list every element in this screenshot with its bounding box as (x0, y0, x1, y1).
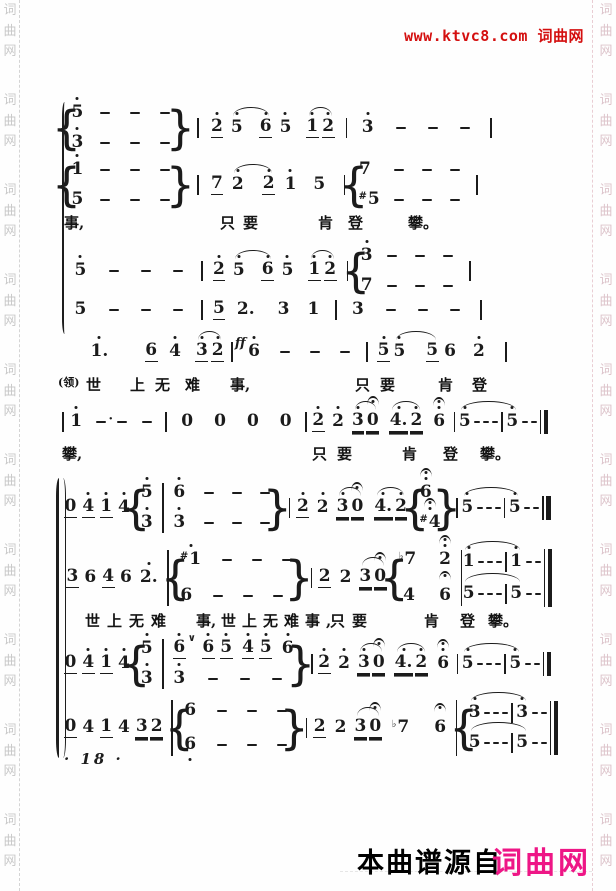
watermark-char: 词 (3, 544, 16, 558)
duration-dash (141, 309, 151, 312)
note-value: 3 (352, 412, 365, 432)
note: 1 (100, 718, 113, 738)
note: 2 (316, 499, 329, 518)
octave-dot-above (438, 406, 441, 409)
lower-voice-row: 6 (184, 734, 287, 756)
octave-dot-above (145, 633, 148, 636)
lower-voice-row: #5 (358, 189, 380, 211)
lyric-text: (领) (58, 374, 79, 390)
watermark-char: 网 (599, 585, 612, 599)
note-value: 0 (369, 718, 382, 738)
note-value: 1 (308, 261, 321, 281)
note-value: 6 (173, 484, 186, 503)
octave-dot-above (382, 336, 385, 339)
octave-dot-above (313, 255, 316, 258)
duration-dash (477, 663, 483, 666)
watermark-group: 词曲网 (1, 634, 19, 689)
note: 0 (181, 413, 194, 432)
note-value: 4 (118, 499, 131, 518)
lyric-text: 难 (185, 374, 200, 395)
octave-dot-above (147, 562, 150, 565)
octave-dot-above (76, 127, 79, 130)
lyric-text: 事, (64, 212, 84, 233)
note: 5 (509, 655, 522, 674)
note-value: 2 (211, 342, 224, 362)
duration-dash (100, 199, 110, 202)
note-value: 3 (140, 670, 153, 689)
slur-group: 32 (195, 342, 224, 362)
note-value: 5 (462, 585, 475, 604)
duration-dash (535, 593, 541, 596)
note-value: 2 (211, 118, 224, 138)
barline (165, 412, 167, 432)
barline (289, 498, 291, 518)
note: 0 (279, 413, 292, 432)
brace-open: { (349, 179, 358, 191)
duration-dash (109, 309, 119, 312)
note-value: 3 (357, 654, 370, 674)
lower-voice-row (394, 189, 460, 211)
duration-dash (130, 142, 140, 145)
octave-dot-above (178, 477, 181, 480)
watermark-char: 词 (599, 814, 612, 828)
note-value: 5 (140, 484, 153, 503)
slur-group: 56 (232, 261, 274, 281)
slur-group: 12 (306, 118, 335, 138)
note: 5 (71, 191, 84, 210)
watermark-char: 曲 (599, 295, 612, 309)
note-value: 5 (367, 191, 380, 210)
music-system: 0414{5363}22304.2{6#4}55 (62, 480, 551, 536)
note-value: 5 (71, 104, 84, 123)
octave-dot-above (511, 406, 514, 409)
note: 2 (213, 261, 226, 281)
octave-dot-above (237, 255, 240, 258)
duration-dash (443, 285, 453, 288)
note: 6 (184, 702, 197, 721)
duration-dash (340, 351, 350, 354)
note-value: 5 (516, 734, 529, 753)
watermark-char: 曲 (3, 565, 16, 579)
octave-dot-above (337, 406, 340, 409)
fermata-icon (351, 482, 363, 491)
slur-group: 11 (462, 552, 522, 572)
duration-dash (483, 421, 489, 424)
note-value: 1 (462, 553, 475, 572)
octave-dot-above (264, 633, 267, 636)
slur-group: 55 (468, 733, 528, 753)
octave-dot-above (289, 169, 292, 172)
note: 0 (369, 718, 382, 738)
duration-dash (531, 421, 537, 424)
barline (454, 412, 456, 432)
note: 5 (426, 342, 439, 362)
note: 2 (322, 118, 335, 138)
note-value: 0 (372, 654, 385, 674)
watermark-char: 曲 (599, 475, 612, 489)
note: 5 (393, 343, 406, 362)
slur-group: 30 (352, 412, 380, 432)
watermark-char: 曲 (3, 745, 16, 759)
lower-voice-row: #4 (419, 512, 441, 534)
watermark-char: 网 (3, 225, 16, 239)
duration-dash (273, 595, 283, 598)
note-value: 2 (322, 118, 335, 138)
brace-open: { (131, 502, 140, 514)
duration-dash (493, 742, 499, 745)
duration-dash (495, 663, 501, 666)
lower-voice-row: 55 (468, 732, 546, 754)
fermata-icon (439, 571, 451, 580)
lyric-text: 肯 (424, 610, 439, 631)
chord-pair: 53 (71, 102, 84, 154)
duration-dash (443, 255, 453, 258)
final-barline (540, 410, 549, 434)
final-barline (550, 701, 559, 755)
note: 1 (462, 553, 475, 572)
lyric-text: 攀。 (480, 443, 510, 464)
octave-dot-above (217, 255, 220, 258)
slur-group: 55 (461, 654, 521, 674)
note-value: 6 (180, 587, 193, 606)
watermark-char: 网 (3, 405, 16, 419)
note: ♭7 (392, 719, 410, 738)
duration-dash (415, 255, 425, 258)
lyric-text: 登 (472, 374, 487, 395)
note-value: 4 (82, 719, 95, 738)
note: 0 (214, 413, 227, 432)
duration-dash (486, 663, 492, 666)
note-value: 3 (173, 514, 186, 533)
note-value: 2 (332, 413, 345, 432)
barline (231, 342, 233, 362)
note-value: 2 (318, 654, 331, 674)
slur-group: 12 (308, 261, 337, 281)
duration-dash (525, 663, 531, 666)
note: 3 (195, 342, 208, 362)
note-value: 2 (316, 499, 329, 518)
final-barline (544, 549, 553, 607)
note: #1 (180, 551, 202, 570)
lyric-text: 世上无难 (85, 610, 173, 631)
slur-arc (396, 331, 436, 340)
note-value: 2 (324, 261, 337, 281)
lyric-text: 无 (155, 374, 170, 395)
lyric-text: 登 (348, 212, 363, 233)
note-value: 1 (307, 301, 320, 320)
watermark-group: 词曲网 (597, 454, 615, 509)
upper-voice-row: 7 (358, 159, 380, 181)
lyric-text: 肯 (402, 443, 417, 464)
note-value: 3 (468, 704, 481, 723)
octave-dot-above (105, 648, 108, 651)
octave-dot-above (365, 240, 368, 243)
octave-dot-above (145, 663, 148, 666)
note-value: 3 (359, 568, 372, 588)
note: 3 (357, 654, 370, 674)
lower-voice-row: 3 (173, 668, 294, 690)
note-value: 1 (510, 553, 523, 572)
note: 4. (374, 498, 393, 518)
duration-dash (502, 712, 508, 715)
lower-voice-row: 7 (360, 275, 373, 297)
watermark-char: 网 (599, 225, 612, 239)
barline (490, 118, 492, 138)
note: 2 (312, 412, 325, 432)
watermark-char: 曲 (3, 25, 16, 39)
chord-pair: #16 (180, 549, 292, 607)
duration-dash (495, 507, 501, 510)
note: 5 (71, 104, 84, 123)
note-value: 4 (82, 498, 95, 518)
chord-pair (100, 159, 170, 211)
watermark-group: 词曲网 (597, 724, 615, 779)
note: 2 (415, 654, 428, 674)
watermark-group: 词曲网 (597, 94, 615, 149)
brace-close: } (295, 572, 304, 584)
note-value: 1 (70, 413, 83, 432)
barline (201, 300, 203, 320)
brace-close: } (290, 722, 299, 734)
final-barline-thick (554, 701, 559, 755)
note: 4 (242, 639, 255, 659)
slur-group: 30 (354, 718, 382, 738)
note: 1 (284, 176, 297, 195)
chord-pair (387, 245, 453, 297)
duration-dash (280, 351, 290, 354)
duration-dash (493, 712, 499, 715)
watermark-char: 词 (3, 4, 16, 18)
lower-voice-row (100, 189, 170, 211)
accidental: # (358, 192, 366, 202)
barline (162, 483, 164, 533)
note-value: 4 (118, 655, 131, 674)
slur-group: 30 (357, 654, 385, 674)
watermark-char: 词 (599, 184, 612, 198)
watermark-group: 词曲网 (597, 4, 615, 59)
duration-dash (252, 559, 262, 562)
octave-dot-above (329, 255, 332, 258)
watermark-char: 网 (599, 135, 612, 149)
note-value: 7 (358, 161, 371, 180)
final-barline-thick (548, 549, 553, 607)
watermark-char: 词 (599, 544, 612, 558)
lower-voice-row: 6 (180, 585, 292, 607)
chord-pair: 37 (360, 245, 373, 297)
watermark-char: 曲 (599, 655, 612, 669)
music-system: 0414{536∨654563}22304.2655 (62, 636, 551, 692)
note: 6 (261, 261, 274, 281)
note: 3 (352, 301, 365, 320)
note-value: 5 (74, 301, 87, 320)
note-value: 5 (74, 262, 87, 281)
watermark-char: 词 (3, 184, 16, 198)
lower-voice-row: 5 (71, 189, 84, 211)
barline (311, 654, 313, 674)
slur-arc (461, 401, 515, 410)
slur-group: 56 (230, 118, 272, 138)
slur-arc (464, 487, 518, 496)
octave-dot-above (317, 406, 320, 409)
octave-dot-above (225, 633, 228, 636)
note: 6 (173, 639, 186, 659)
barline (480, 300, 482, 320)
note: 6 (437, 655, 450, 674)
note: 4 (169, 343, 182, 362)
duration-dash (522, 421, 528, 424)
final-barline-thin (550, 701, 552, 755)
octave-dot-above (366, 112, 369, 115)
slur-group: 55 (393, 342, 439, 362)
duration-dash (247, 710, 257, 713)
watermark-char: 词 (3, 454, 16, 468)
brace-close: } (176, 179, 185, 191)
note: 3 (361, 119, 374, 138)
octave-dot-above (398, 336, 401, 339)
octave-dot-above (105, 492, 108, 495)
octave-dot-above (246, 633, 249, 636)
duration-dash (109, 270, 119, 273)
duration-dash (396, 127, 406, 130)
barline (511, 733, 513, 753)
note: 3 (173, 670, 186, 689)
footer-brand-link[interactable]: 词曲网 (492, 838, 591, 882)
final-barline-thin (544, 549, 546, 607)
note-value: 5 (213, 300, 226, 320)
duration-dash (541, 712, 547, 715)
duration-dash (222, 559, 232, 562)
note: 1 (308, 261, 321, 281)
octave-dot-above (87, 492, 90, 495)
octave-dot-above (382, 492, 385, 495)
barline (511, 703, 513, 723)
duration-dash (173, 270, 183, 273)
watermark-char: 网 (599, 675, 612, 689)
note: 5 (508, 499, 521, 518)
lower-voice-row: 3 (173, 512, 270, 534)
note-value: 3 (173, 670, 186, 689)
beam-group: 32 (135, 718, 163, 738)
slur-group: 22 (231, 175, 275, 195)
note: 4 (118, 655, 131, 674)
note: 7 (358, 161, 371, 180)
note: 1 (100, 498, 113, 518)
watermark-group: 词曲网 (1, 274, 19, 329)
note: 1 (71, 161, 84, 180)
note: 3 (140, 670, 153, 689)
chord-pair: 15 (71, 159, 84, 211)
note-value: 2 (296, 498, 309, 518)
watermark-char: 词 (3, 274, 16, 288)
note-value: 5 (458, 413, 471, 432)
upper-voice-row: 6 (184, 700, 287, 722)
note: 5 (462, 585, 475, 604)
octave-dot-above (424, 477, 427, 480)
octave-dot-above (286, 633, 289, 636)
note: 2 (296, 498, 309, 518)
note-value: 0 (181, 413, 194, 432)
duration-dash (496, 561, 502, 564)
fermata-icon (437, 639, 449, 648)
barline (505, 342, 507, 362)
note-value: 7 (360, 277, 373, 296)
note: 3 (277, 301, 290, 320)
note-value: 2 (339, 569, 352, 588)
note: 2 (332, 413, 345, 432)
slur-group: 55 (461, 498, 521, 518)
duration-dash (532, 742, 538, 745)
note-value: 6 (120, 569, 133, 588)
lyric-text: 世 (86, 374, 101, 395)
note-value: 5 (71, 191, 84, 210)
octave-dot-above (399, 492, 402, 495)
lyric-text: 只要 (355, 374, 405, 395)
note-value: 6 (184, 736, 197, 755)
fermata-icon (369, 702, 381, 711)
watermark-char: 网 (599, 405, 612, 419)
duration-dash (100, 169, 110, 172)
upper-voice-row (100, 102, 170, 124)
octave-dot-above (444, 544, 447, 547)
octave-dot-above (207, 633, 210, 636)
watermark-char: 网 (3, 135, 16, 149)
final-barline-thick (544, 410, 549, 434)
barline (504, 654, 506, 674)
note: 5 (510, 585, 523, 604)
lyric-text: 攀, (62, 443, 82, 464)
watermark-char: 曲 (599, 745, 612, 759)
note-value: 1 (306, 118, 319, 138)
system-bracket (56, 478, 66, 758)
note: 2 (472, 343, 485, 362)
dot-mark: · (109, 412, 114, 427)
right-watermark-column: 词曲网词曲网词曲网词曲网词曲网词曲网词曲网词曲网词曲网词曲网 (597, 0, 615, 891)
note-value: 5 (461, 499, 474, 518)
note-value: 3 (195, 342, 208, 362)
note: 5 (458, 413, 471, 432)
watermark-char: 网 (3, 45, 16, 59)
duration-dash (232, 522, 242, 525)
note-value: 4 (118, 719, 131, 738)
site-watermark-text: www.ktvc8.com 词曲网 (404, 25, 584, 46)
note-value: 4. (374, 498, 393, 518)
duration-dash (418, 309, 428, 312)
duration-dash (422, 199, 432, 202)
note: 0 (372, 654, 385, 674)
note: 4 (403, 587, 416, 606)
note: 4 (82, 498, 95, 518)
note-value: 5 (468, 734, 481, 753)
octave-dot-above (235, 112, 238, 115)
note-value: 6 (202, 639, 215, 659)
duration-dash (310, 351, 320, 354)
watermark-char: 词 (599, 724, 612, 738)
duration-dash (247, 744, 257, 747)
duration-dash (450, 199, 460, 202)
watermark-char: 词 (599, 274, 612, 288)
duration-dash (526, 593, 532, 596)
note: 2 (150, 718, 163, 738)
note: 0 (351, 498, 364, 518)
duration-dash (415, 285, 425, 288)
octave-dot-above (341, 492, 344, 495)
note: 2 (313, 718, 326, 738)
octave-dot-above (98, 336, 101, 339)
note: 2 (262, 175, 275, 195)
note: 5 (74, 262, 87, 281)
octave-dot-above (442, 648, 445, 651)
note-value: 1 (100, 498, 113, 518)
